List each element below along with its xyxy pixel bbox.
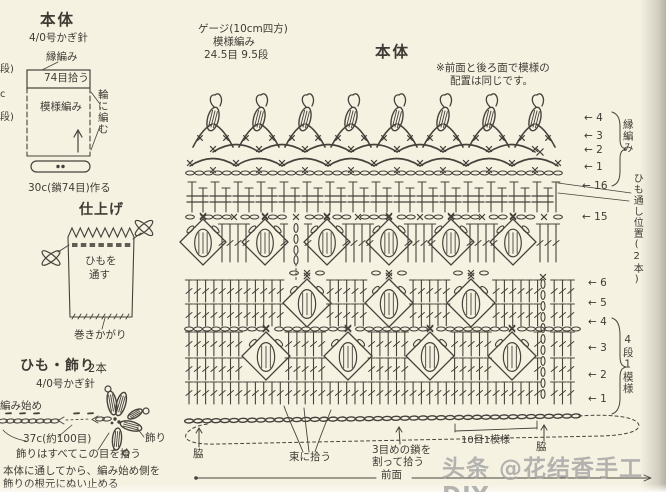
gauge-line3: 24.5目 9.5段	[204, 50, 268, 62]
clipped-rows-fragment-bottom: 段)	[0, 112, 14, 123]
finishing-title: 仕上げ	[79, 203, 124, 219]
gauge-line2: 模様編み	[213, 37, 255, 49]
chart-title: 本体	[375, 44, 410, 61]
clipped-cm-fragment: c	[0, 89, 6, 100]
cord-length-label: 37c(約100目)	[23, 434, 91, 446]
edge-row-number-3: ← 3	[584, 130, 603, 142]
cord-note-line1: 本体に通してから、編み始め側を	[3, 466, 160, 478]
thread-cord-label-1: ひもを	[85, 256, 117, 268]
front-back-note-line1: ※前面と後ろ面で模様の	[436, 63, 550, 75]
ten-stitch-repeat-label: 10目1模様	[461, 435, 510, 446]
edge-bracket-label: 縁編み	[621, 119, 633, 154]
start-knitting-label: 編み始め	[0, 401, 42, 413]
main-row-number-16: ← 16	[582, 180, 608, 192]
deco-pickup-note: 飾りはすべてこの目を拾う	[16, 449, 141, 461]
pattern-page: 本体 4/0号かぎ針 縁編み 74目拾う 模様編み 輪に編む 30c(鎖74目)…	[0, 0, 666, 492]
split-chain-label-2: 割って拾う	[372, 457, 424, 469]
cord-note-line2: 飾りの根元にぬい止める	[3, 479, 119, 491]
pickup-stitches-label: 74目拾う	[44, 73, 89, 85]
crochet-chart-art	[0, 0, 666, 492]
lower-row-number-6: ← 6	[588, 277, 607, 289]
cord-position-label: ひも通し位置(2本)	[631, 173, 642, 286]
clipped-rows-fragment-top: 段)	[0, 64, 14, 75]
lower-row-number-4: ← 4	[588, 316, 607, 328]
work-in-round-label: 輪に編む	[96, 89, 108, 135]
cord-hook-label: 4/0号かぎ針	[36, 379, 95, 391]
body-hook-label: 4/0号かぎ針	[29, 33, 88, 45]
split-chain-label-1: 3目めの鎖を	[372, 445, 431, 457]
lower-row-number-5: ← 5	[588, 297, 607, 309]
cord-deco-title: ひも・飾り	[20, 359, 95, 375]
gauge-line1: ゲージ(10cm四方)	[198, 24, 288, 36]
decoration-label: 飾り	[145, 433, 166, 445]
edge-row-number-1: ← 1	[584, 161, 603, 173]
side-seam-left-label: 脇	[193, 449, 204, 461]
lower-row-number-3: ← 3	[588, 342, 607, 354]
pickup-bundle-label: 束に拾う	[289, 452, 331, 464]
foundation-chain-label: 30c(鎖74目)作る	[28, 183, 111, 195]
lower-row-number-1: ← 1	[588, 393, 607, 405]
body-schematic-title: 本体	[40, 12, 75, 29]
repeat-bracket-label: 4段1模様	[621, 334, 633, 395]
edge-stitch-label: 縁編み	[46, 52, 78, 64]
edge-row-number-4: ← 4	[584, 112, 603, 124]
lower-row-number-2: ← 2	[588, 369, 607, 381]
cord-count-label: 2本	[88, 362, 107, 375]
thread-cord-label-2: 通す	[89, 270, 110, 282]
front-back-note-line2: 配置は同じです。	[450, 76, 533, 88]
whipstitch-label: 巻きかがり	[74, 330, 127, 342]
watermark-text: 头条 @花结香手工DIY	[442, 449, 666, 492]
pattern-stitch-label: 模様編み	[40, 102, 82, 114]
front-face-label: 前面	[381, 470, 402, 482]
main-row-number-15: ← 15	[582, 211, 608, 223]
edge-row-number-2: ← 2	[584, 144, 603, 156]
